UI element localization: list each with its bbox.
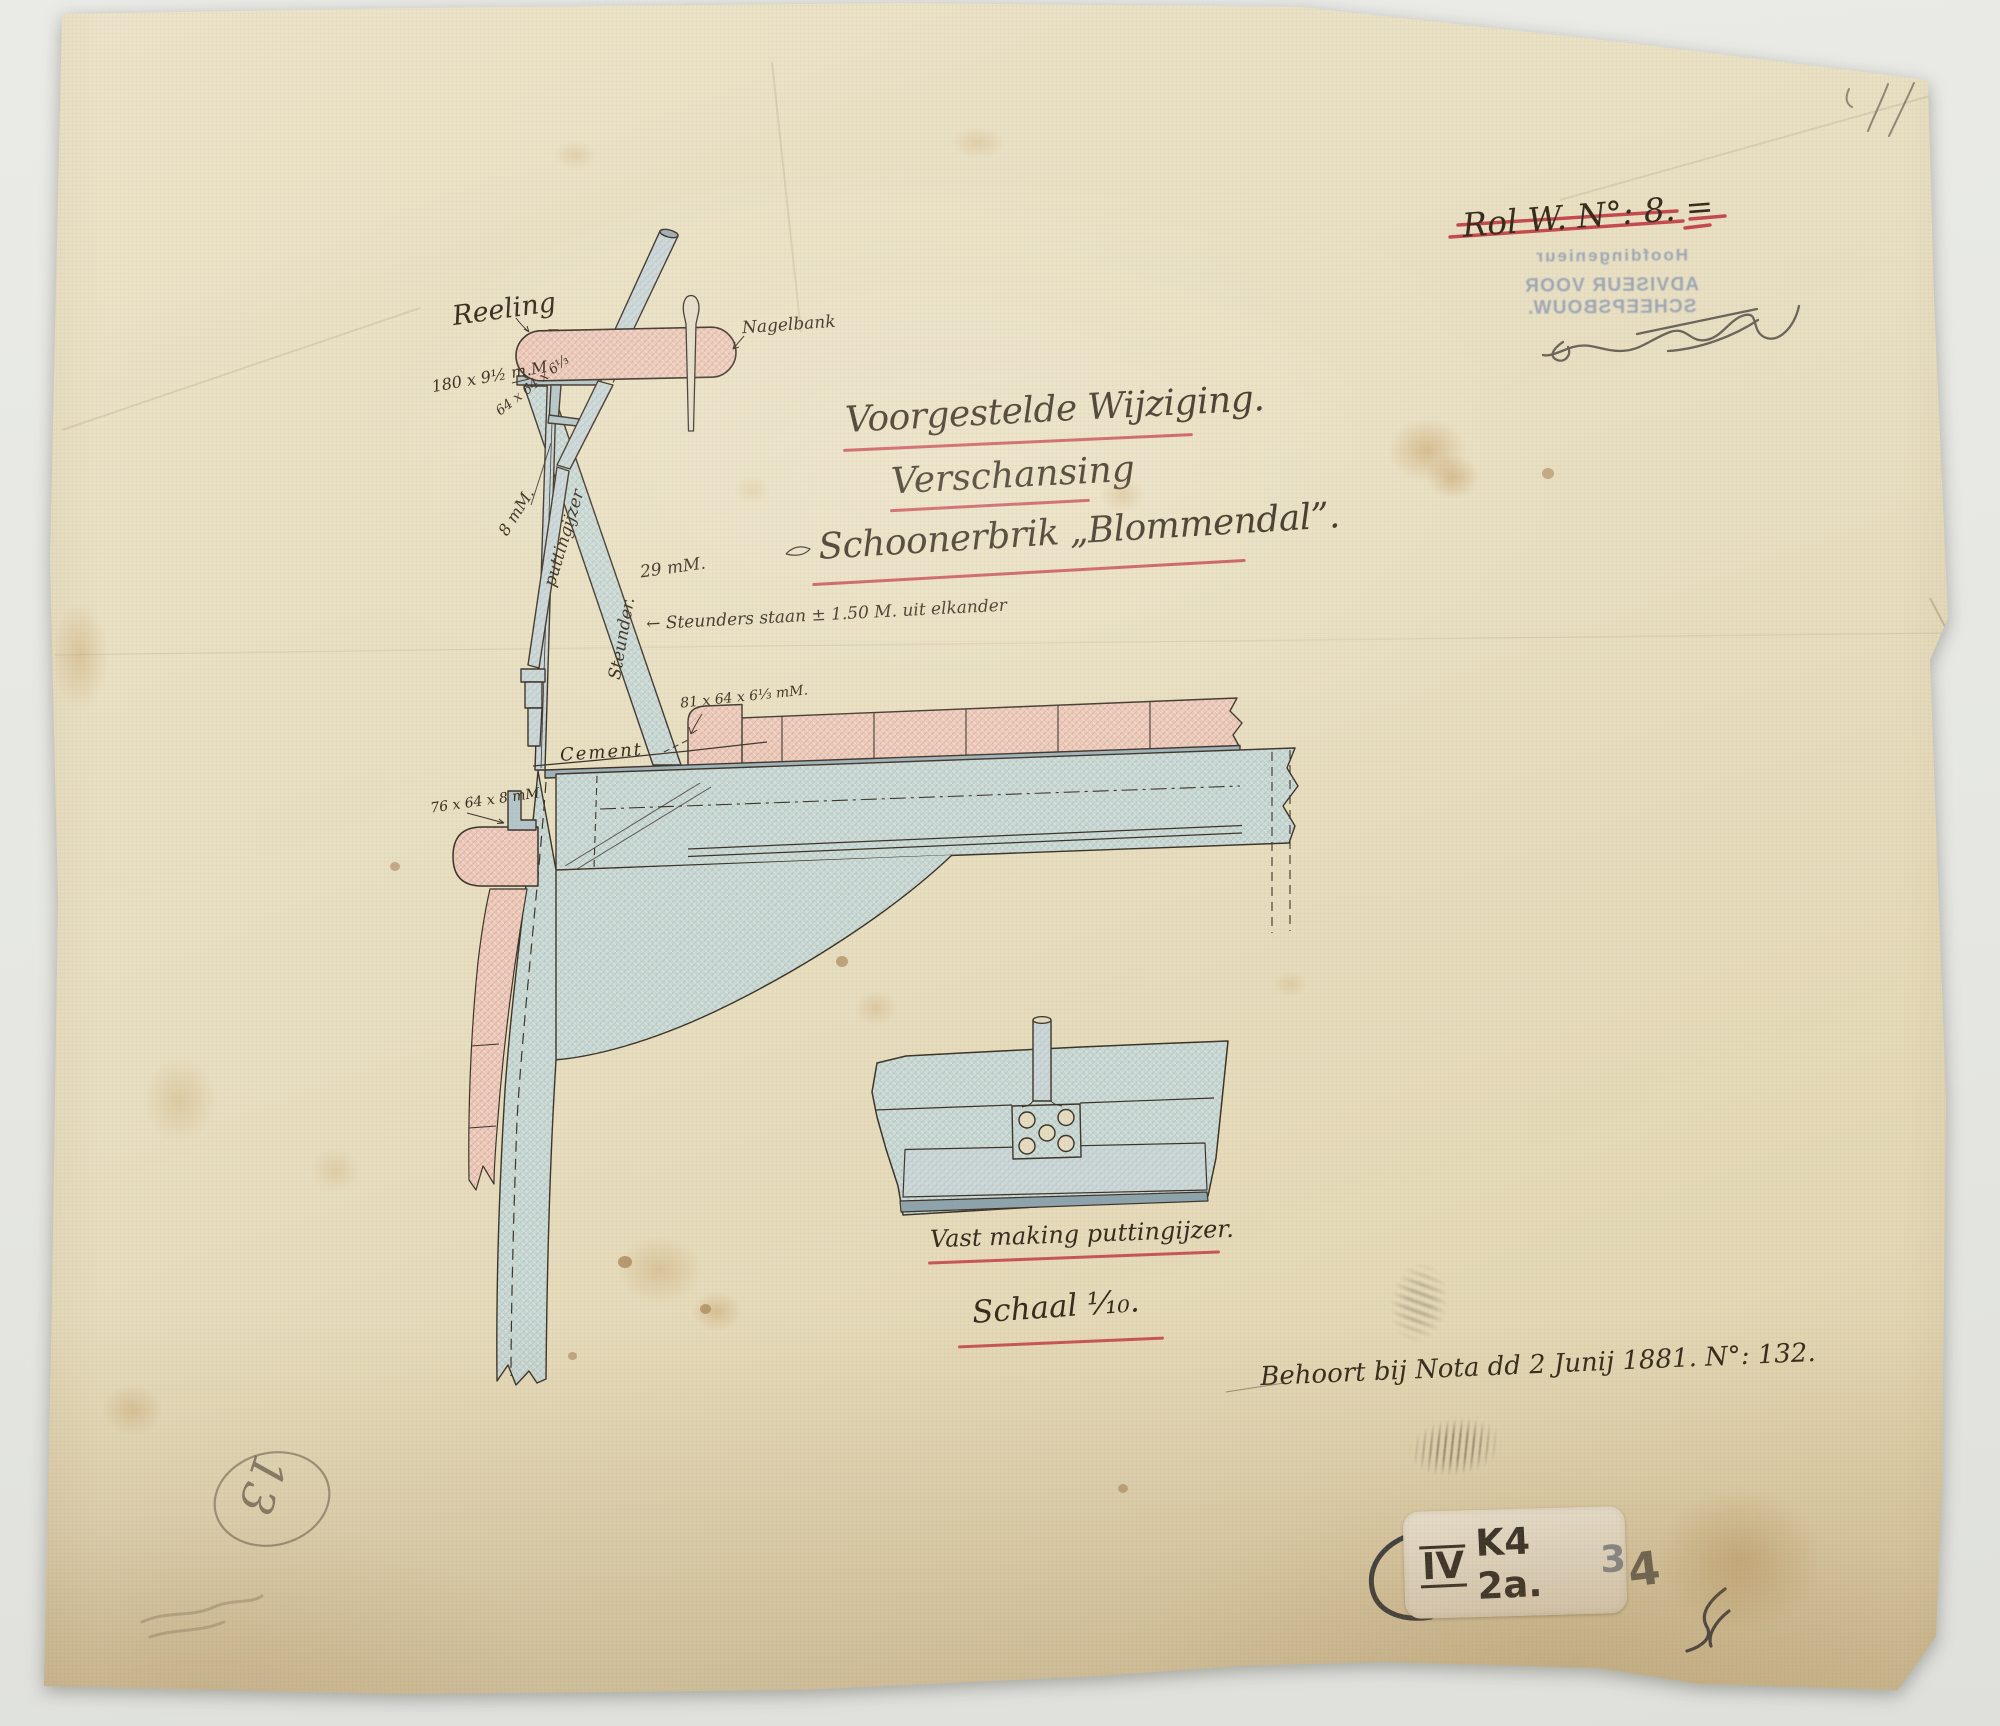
frame-knee [556,855,952,1061]
drawing-sheet: Rol W. N°: 8. = Hoofdingenieur ADVISEUR … [0,0,2000,1726]
drawing-sheet-wrap: Rol W. N°: 8. = Hoofdingenieur ADVISEUR … [0,0,2000,1726]
photograph-background: Rol W. N°: 8. = Hoofdingenieur ADVISEUR … [0,0,2000,1726]
stamp-line1: Hoofdingenieur [1437,244,1786,267]
paper-creases [55,62,1952,655]
sticker-digit-faded: 3 [1599,1536,1627,1580]
deck-curb [688,705,742,771]
sticker-code: K4 2a. [1475,1516,1593,1607]
berghout-rubbing-strake [453,827,538,886]
sticker-digit-outside: 4 [1625,1540,1663,1597]
fastening-detail-drawing [872,1017,1228,1215]
sticker-roman-numeral: IV [1419,1544,1467,1587]
stamp-line2: ADVISEUR VOOR SCHEEPSBOUW. [1437,273,1786,320]
advisor-stamp: Hoofdingenieur ADVISEUR VOOR SCHEEPSBOUW… [1437,244,1787,320]
detail-rod [1033,1020,1051,1101]
puttingijzer-rod [612,231,678,341]
pen-scrawl [1687,1589,1729,1651]
archive-sticker: IV K4 2a. 3 [1403,1506,1628,1619]
faint-pencil-squiggle [142,1596,262,1637]
